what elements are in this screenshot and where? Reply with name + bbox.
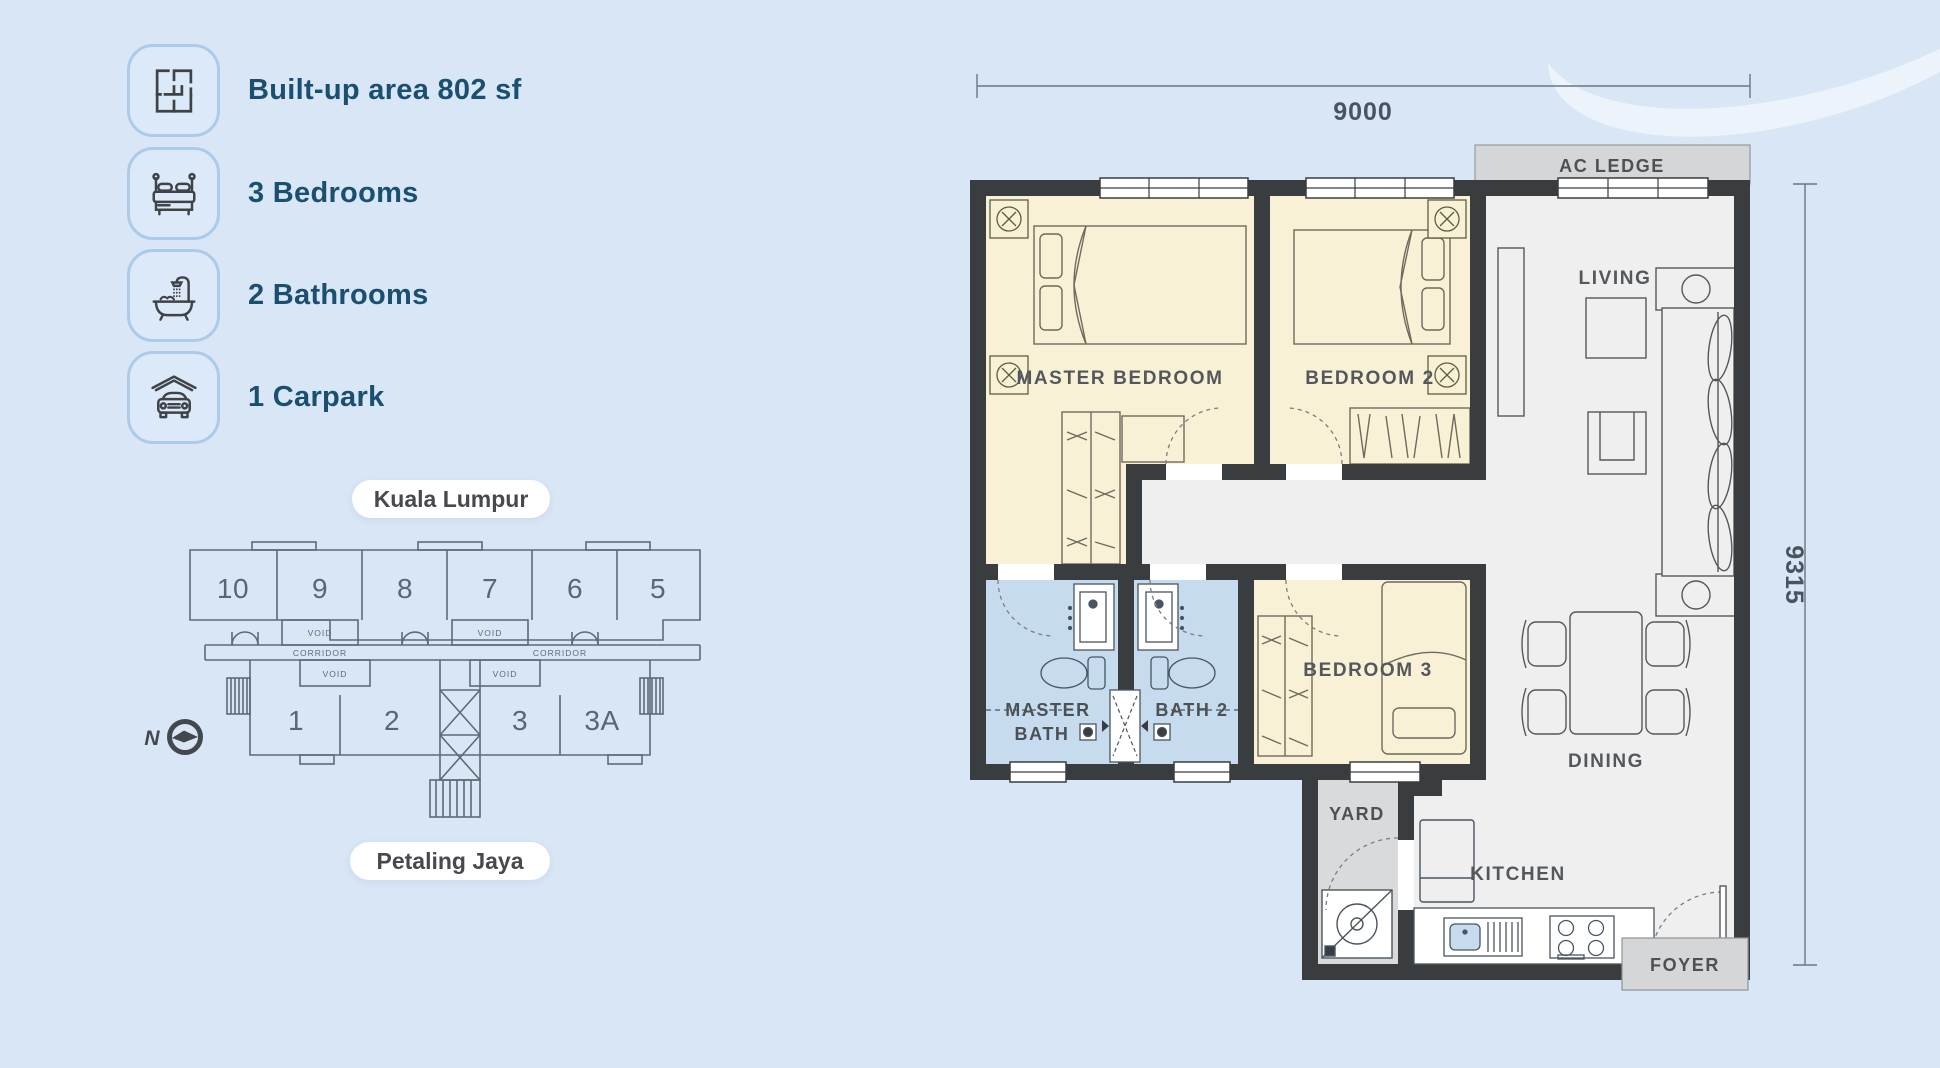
unit-number: 10 xyxy=(217,573,249,604)
kitchen-counter xyxy=(1414,908,1654,964)
unit-number: 7 xyxy=(482,573,498,604)
void-label: VOID xyxy=(478,628,503,638)
master-bedroom-label: MASTER BEDROOM xyxy=(1016,368,1223,389)
fan-icon xyxy=(990,200,1028,238)
bedroom3-label: BEDROOM 3 xyxy=(1303,660,1432,681)
unit-number: 8 xyxy=(397,573,413,604)
void-label: VOID xyxy=(308,628,333,638)
bath2-vanity xyxy=(1138,584,1184,650)
window xyxy=(1350,762,1420,782)
corridor-label: CORRIDOR xyxy=(293,648,347,658)
fan-icon xyxy=(1428,200,1466,238)
key-plan-lines xyxy=(190,542,700,817)
washing-machine xyxy=(1322,890,1392,958)
window xyxy=(1100,178,1248,198)
location-pill-top: Kuala Lumpur xyxy=(352,480,550,518)
feature-label: 1 Carpark xyxy=(248,381,385,414)
unit-number: 9 xyxy=(312,573,328,604)
fridge xyxy=(1420,820,1474,902)
bathtub-icon xyxy=(147,269,201,323)
bed-icon-card xyxy=(127,147,220,240)
unit-number: 5 xyxy=(650,573,666,604)
feature-builtup-area: Built-up area 802 sf xyxy=(127,44,522,137)
window xyxy=(1174,762,1230,782)
key-plan-unit-numbers-top: 10 9 8 7 6 5 xyxy=(217,573,666,604)
bedroom2-bed xyxy=(1294,230,1450,344)
window xyxy=(1306,178,1454,198)
unit-number: 1 xyxy=(288,705,304,736)
north-label: N xyxy=(144,727,160,750)
bedroom2-wardrobe xyxy=(1350,408,1470,464)
master-bath-label-line2: BATH xyxy=(1014,724,1069,744)
bed-icon xyxy=(147,167,201,221)
bedroom3-wardrobe xyxy=(1258,616,1312,756)
window xyxy=(1558,178,1708,198)
bath2-toilet xyxy=(1151,657,1215,689)
feature-carpark: 1 Carpark xyxy=(127,351,385,444)
dimension-height: 9315 xyxy=(1780,545,1808,605)
ac-ledge-label: AC LEDGE xyxy=(1559,156,1665,176)
dining-label: DINING xyxy=(1568,751,1644,772)
hallway-floor xyxy=(1142,480,1486,564)
unit-number: 2 xyxy=(384,705,400,736)
void-label: VOID xyxy=(493,669,518,679)
master-bath-vanity xyxy=(1069,584,1115,650)
unit-number: 6 xyxy=(567,573,583,604)
kitchen-label: KITCHEN xyxy=(1470,864,1566,885)
feature-label: 2 Bathrooms xyxy=(248,279,429,312)
feature-label: Built-up area 802 sf xyxy=(248,74,522,107)
floorplan-icon-card xyxy=(127,44,220,137)
feature-bedrooms: 3 Bedrooms xyxy=(127,147,419,240)
bathtub-icon-card xyxy=(127,249,220,342)
living-label: LIVING xyxy=(1579,268,1652,289)
master-bed xyxy=(1034,226,1246,344)
bedroom2-label: BEDROOM 2 xyxy=(1305,368,1434,389)
location-pill-bottom: Petaling Jaya xyxy=(350,842,550,880)
master-bath-toilet xyxy=(1041,657,1105,689)
master-wardrobe xyxy=(1062,412,1120,564)
carpark-icon xyxy=(147,371,201,425)
corridor-label: CORRIDOR xyxy=(533,648,587,658)
yard-label: YARD xyxy=(1329,804,1385,824)
unit-number: 3A xyxy=(584,705,619,736)
master-bath-label-line1: MASTER xyxy=(1005,700,1091,720)
feature-bathrooms: 2 Bathrooms xyxy=(127,249,429,342)
unit-number: 3 xyxy=(512,705,528,736)
void-label: VOID xyxy=(323,669,348,679)
key-plan: 10 9 8 7 6 5 1 2 3 3A VOID VOID VOID VOI… xyxy=(100,528,740,828)
feature-label: 3 Bedrooms xyxy=(248,177,419,210)
carpark-icon-card xyxy=(127,351,220,444)
foyer-label: FOYER xyxy=(1650,955,1720,975)
bath2-label: BATH 2 xyxy=(1155,700,1228,720)
unit-floor-plan: AC LEDGE xyxy=(950,60,1850,1010)
foyer: FOYER xyxy=(1622,938,1748,990)
sofa xyxy=(1656,268,1736,616)
floorplan-icon xyxy=(147,64,201,118)
window xyxy=(1010,762,1066,782)
dimension-width: 9000 xyxy=(1333,98,1393,126)
north-arrow-icon: N xyxy=(144,722,200,753)
